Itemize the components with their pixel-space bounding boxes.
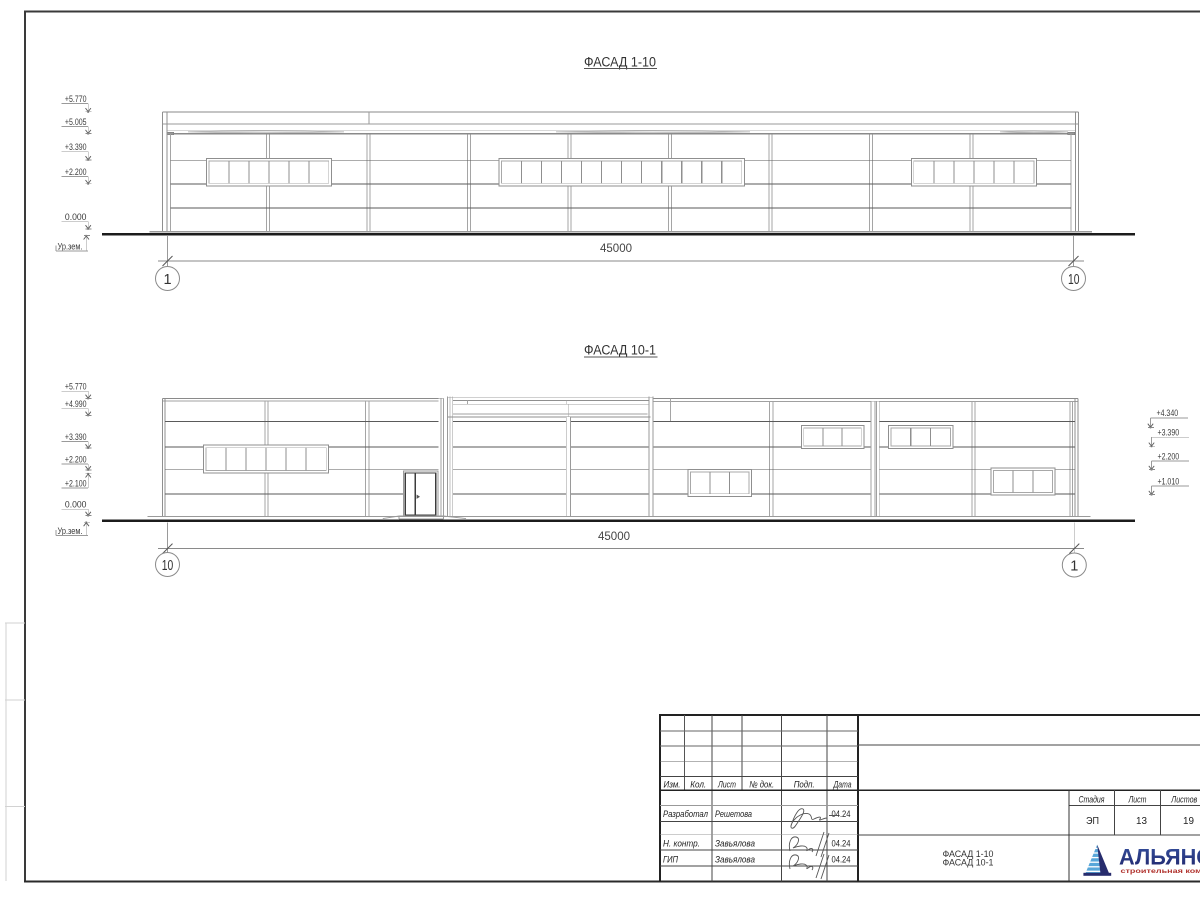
svg-text:ГИП: ГИП xyxy=(663,855,678,866)
svg-text:+4.990: +4.990 xyxy=(65,399,87,409)
svg-text:+5.005: +5.005 xyxy=(65,117,87,127)
svg-text:0.000: 0.000 xyxy=(65,212,87,222)
svg-text:№ док.: № док. xyxy=(749,779,774,790)
svg-text:Лист: Лист xyxy=(717,779,736,790)
svg-text:Решетова: Решетова xyxy=(715,809,752,820)
svg-text:10: 10 xyxy=(1068,272,1080,288)
svg-text:ФАСАД 10-1: ФАСАД 10-1 xyxy=(584,342,656,357)
svg-text:04.24: 04.24 xyxy=(832,839,851,850)
svg-text:04.24: 04.24 xyxy=(832,809,851,820)
svg-text:1: 1 xyxy=(1070,558,1078,574)
svg-text:строительная компания: строительная компания xyxy=(1121,868,1200,875)
svg-text:+5.770: +5.770 xyxy=(65,382,87,392)
svg-text:ЭП: ЭП xyxy=(1086,816,1099,827)
svg-text:АЛЬЯНС: АЛЬЯНС xyxy=(1119,845,1200,870)
svg-text:+1.010: +1.010 xyxy=(1158,477,1180,487)
svg-text:Подп.: Подп. xyxy=(794,779,815,790)
svg-text:Завьялова: Завьялова xyxy=(715,855,755,866)
svg-text:45000: 45000 xyxy=(600,243,632,255)
svg-text:+2.200: +2.200 xyxy=(1158,452,1180,462)
svg-text:Кол.: Кол. xyxy=(690,779,706,790)
svg-text:+3.390: +3.390 xyxy=(65,432,87,442)
svg-text:Ур.зем.: Ур.зем. xyxy=(58,526,83,536)
svg-text:Листов: Листов xyxy=(1171,795,1198,806)
svg-text:Стадия: Стадия xyxy=(1079,795,1105,806)
svg-text:+3.390: +3.390 xyxy=(1158,428,1180,438)
svg-text:13: 13 xyxy=(1136,816,1147,827)
svg-text:Изм.: Изм. xyxy=(664,779,681,790)
svg-text:Завьялова: Завьялова xyxy=(715,839,755,850)
svg-text:10: 10 xyxy=(162,558,174,574)
svg-text:+3.390: +3.390 xyxy=(65,142,87,152)
svg-text:+2.200: +2.200 xyxy=(65,454,87,464)
svg-text:Н. контр.: Н. контр. xyxy=(663,839,700,850)
svg-text:Лист: Лист xyxy=(1128,795,1147,806)
svg-text:0.000: 0.000 xyxy=(65,500,87,510)
svg-text:Дата: Дата xyxy=(833,779,852,790)
svg-text:ФАСАД 1-10: ФАСАД 1-10 xyxy=(584,54,656,69)
svg-text:Ур.зем.: Ур.зем. xyxy=(58,241,83,251)
svg-text:+2.200: +2.200 xyxy=(65,167,87,177)
svg-text:45000: 45000 xyxy=(598,531,630,543)
svg-text:Разработал: Разработал xyxy=(663,809,709,820)
svg-text:ФАСАД 10-1: ФАСАД 10-1 xyxy=(943,858,994,869)
svg-text:+4.340: +4.340 xyxy=(1157,408,1179,418)
svg-text:1: 1 xyxy=(163,272,171,288)
svg-text:+2.100: +2.100 xyxy=(65,479,87,489)
svg-text:19: 19 xyxy=(1183,816,1194,827)
svg-text:04.24: 04.24 xyxy=(832,855,851,866)
svg-text:+5.770: +5.770 xyxy=(65,94,87,104)
